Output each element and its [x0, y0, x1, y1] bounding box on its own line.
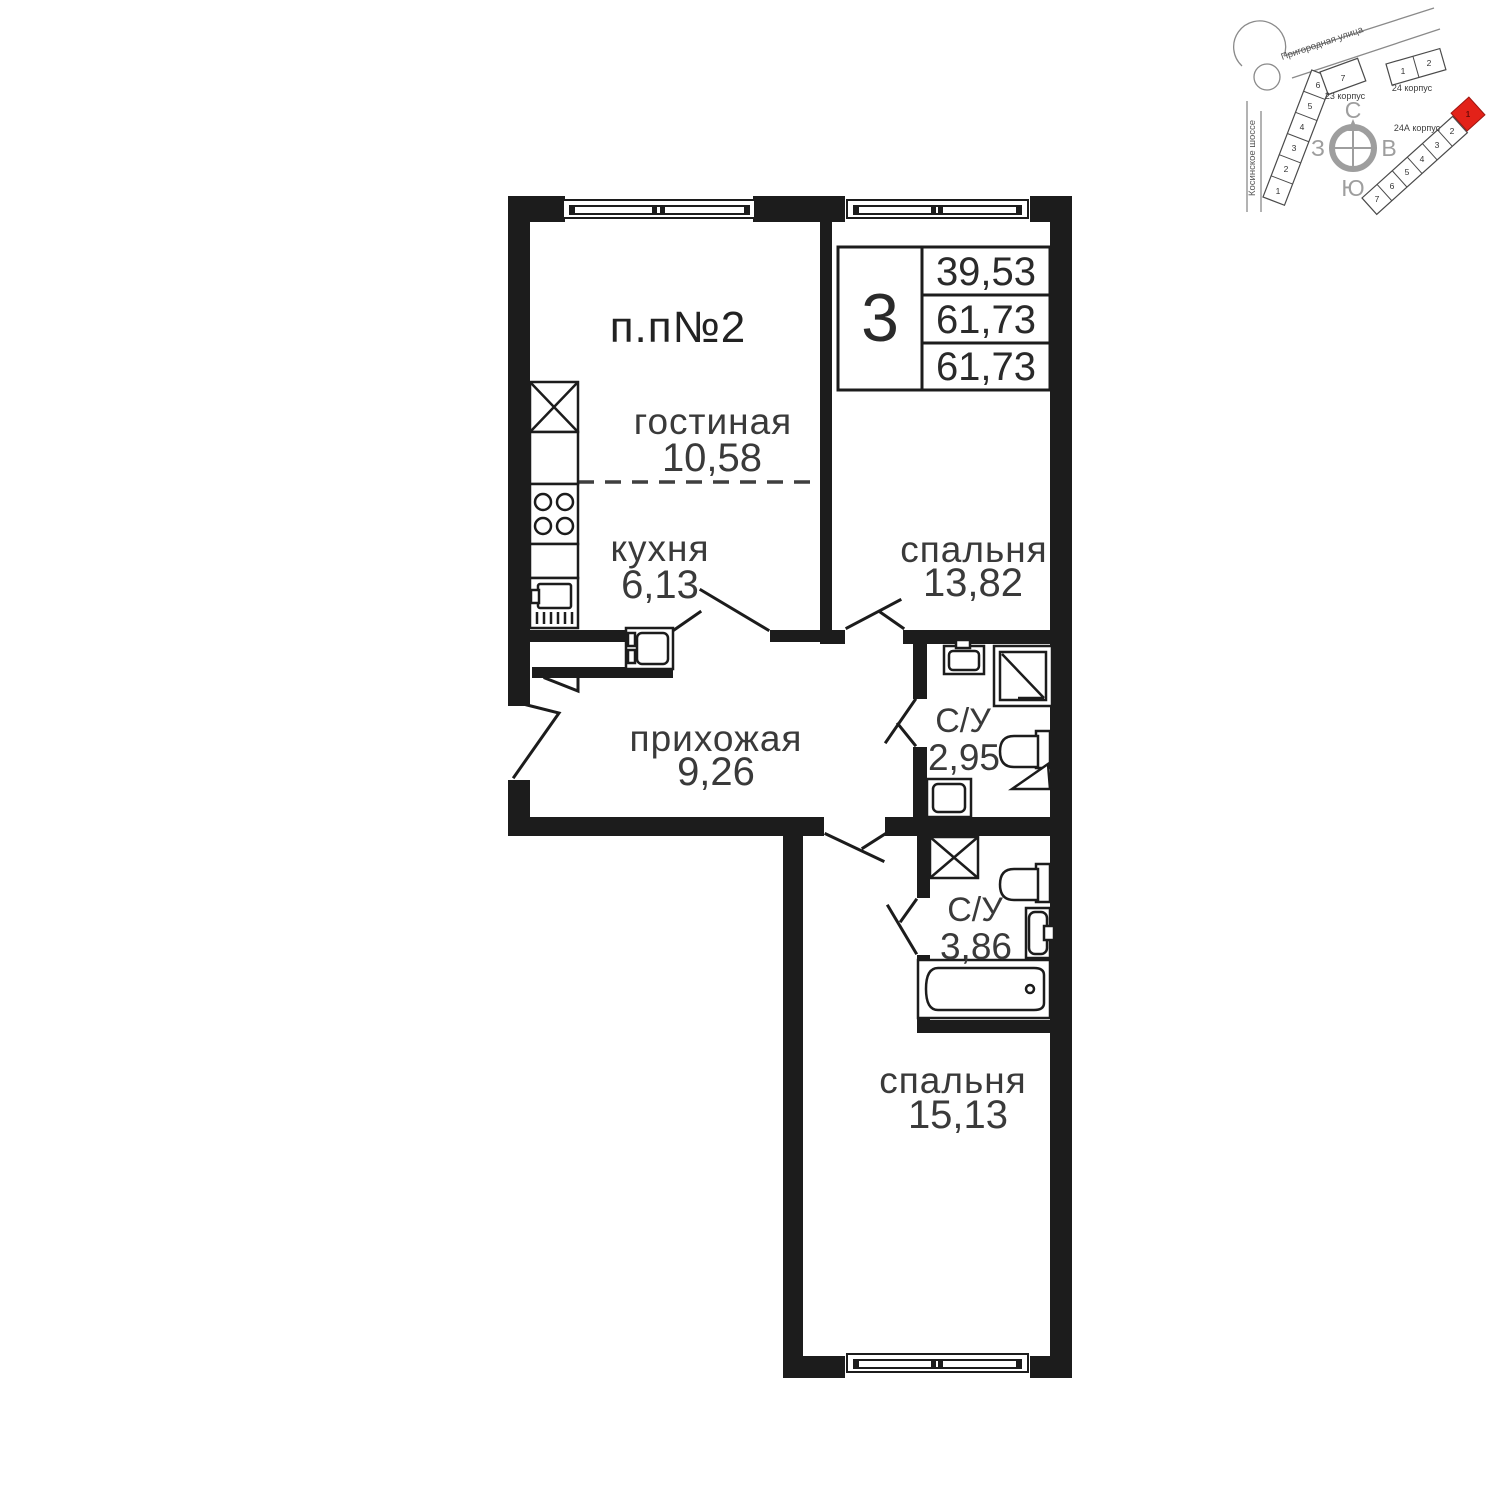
washer-detail	[628, 633, 635, 646]
area-value: 61,73	[936, 345, 1036, 389]
section-number: 6	[1390, 181, 1395, 191]
section-number: 2	[1450, 126, 1455, 136]
bedroom2-door	[826, 834, 885, 861]
roundabout-inner	[1254, 64, 1280, 90]
area-value: 61,73	[936, 298, 1036, 342]
bedroom1-door	[847, 600, 903, 628]
site-minimap: Пригородная улица Косинское шоссе 1 2 3 …	[1234, 8, 1485, 214]
bathroom1-door	[886, 700, 915, 745]
room-bathroom1-area: 2,95	[928, 737, 1000, 778]
window-sash	[855, 206, 1020, 214]
room-hallway-area: 9,26	[677, 750, 755, 794]
compass-south: Ю	[1341, 175, 1364, 201]
section-number: 3	[1292, 143, 1297, 153]
kitchen-counter	[530, 432, 578, 484]
apartment-plan: 3 39,53 61,73 61,73 п.п№2 гостиная 10,58…	[508, 196, 1072, 1378]
area-value: 39,53	[936, 250, 1036, 294]
floorplan-canvas: 3 39,53 61,73 61,73 п.п№2 гостиная 10,58…	[0, 0, 1500, 1500]
window-bedroom1	[847, 200, 1028, 218]
section-number: 1	[1276, 186, 1281, 196]
section-number: 2	[1284, 164, 1289, 174]
room-bedroom1-area: 13,82	[923, 561, 1023, 605]
rooms-count: 3	[861, 280, 899, 356]
room-bathroom2-area: 3,86	[940, 926, 1012, 967]
kitchen-counter	[530, 544, 578, 578]
washing-machine-drum	[933, 784, 965, 812]
hall-closet-door	[545, 678, 578, 691]
compass-north: С	[1345, 97, 1362, 123]
window-sash	[855, 1360, 1020, 1368]
toilet-bowl	[1000, 736, 1038, 767]
section-number: 4	[1420, 154, 1425, 164]
window-sash	[571, 206, 747, 214]
roundabout-outer	[1234, 21, 1286, 66]
window-bedroom2	[847, 1354, 1028, 1372]
section-number: 5	[1308, 101, 1313, 111]
washer-detail	[628, 650, 635, 663]
room-bathroom2-name: С/У	[947, 891, 1003, 929]
room-kitchen-area: 6,13	[621, 563, 699, 607]
entrance-door	[514, 705, 559, 777]
section-number: 6	[1316, 80, 1321, 90]
washing-machine	[637, 633, 668, 664]
sink-faucet	[1044, 926, 1054, 940]
building-24a-label: 24А корпус	[1394, 123, 1441, 133]
sink-faucet	[956, 640, 970, 648]
street-name-left: Косинское шоссе	[1247, 120, 1258, 196]
section-number: 7	[1341, 73, 1346, 83]
kitchen-sink-faucet	[531, 590, 539, 603]
sink-bowl	[949, 651, 979, 670]
building-24-strip	[1386, 49, 1446, 86]
section-number: 3	[1435, 140, 1440, 150]
section-number: 5	[1405, 167, 1410, 177]
toilet-bowl	[1000, 869, 1038, 900]
section-number: 4	[1300, 122, 1305, 132]
window-living-room	[563, 200, 755, 218]
room-living-area: 10,58	[662, 436, 762, 480]
building-24: 1 2 24 корпус	[1386, 49, 1446, 93]
section-number: 1	[1401, 66, 1406, 76]
section-number-highlighted: 1	[1466, 110, 1471, 119]
bathroom2-door	[888, 900, 916, 953]
stove	[530, 484, 578, 544]
section-number: 2	[1427, 58, 1432, 68]
compass-east: В	[1381, 135, 1396, 161]
floorplan-page: 3 39,53 61,73 61,73 п.п№2 гостиная 10,58…	[0, 0, 1500, 1500]
building-24-label: 24 корпус	[1392, 83, 1433, 93]
apartment-label: п.п№2	[610, 303, 747, 352]
compass-west: З	[1311, 135, 1325, 161]
room-bathroom1-name: С/У	[935, 702, 991, 740]
section-number: 7	[1375, 194, 1380, 204]
kitchen-sink-bowl	[538, 584, 571, 608]
street-name-top: Пригородная улица	[1280, 24, 1366, 63]
apartment-info-box: 3 39,53 61,73 61,73	[838, 247, 1050, 390]
room-bedroom2-area: 15,13	[908, 1093, 1008, 1137]
